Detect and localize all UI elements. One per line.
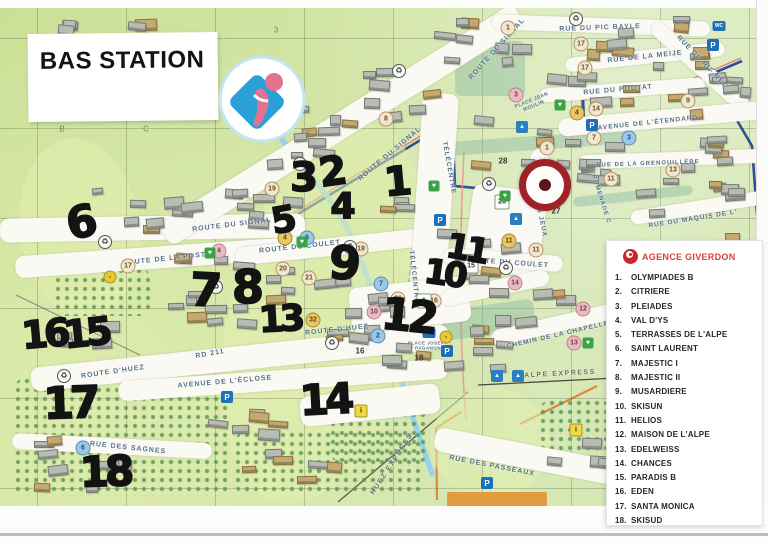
activity-icon: ▲	[491, 370, 503, 382]
building	[92, 187, 104, 195]
building	[582, 437, 602, 449]
grid-label: C	[143, 125, 149, 134]
parking-icon: P	[707, 39, 719, 51]
legend-item-label: MUSARDIERE	[631, 385, 687, 399]
legend-item: 13.EDELWEISS	[615, 443, 756, 457]
map-marker: 1	[540, 141, 555, 156]
building	[469, 326, 484, 338]
legend-item-number: 10.	[615, 400, 631, 414]
legend-item-number: 6.	[615, 342, 631, 356]
legend-item-label: CHANCES	[631, 457, 672, 471]
legend-item: 9.MUSARDIERE	[615, 385, 756, 399]
recycle-icon: ♻	[569, 12, 583, 26]
legend-item-number: 11.	[615, 414, 631, 428]
map-marker: 3	[622, 131, 637, 146]
handwritten-number: 3	[290, 158, 318, 198]
scanned-resort-map: BCDE3RUE DU PIC BAYLERUE DE LA MEIJERUE …	[0, 0, 768, 543]
handwritten-number: 1	[382, 161, 413, 203]
legend-item: 5.TERRASSES DE L'ALPE	[615, 328, 756, 342]
building	[266, 158, 283, 170]
map-marker: 17	[578, 61, 593, 76]
map-title-box: BAS STATION	[28, 32, 219, 122]
building	[471, 160, 492, 170]
activity-icon: ▲	[516, 121, 528, 133]
legend-item-label: EDELWEISS	[631, 443, 679, 457]
building	[620, 98, 634, 108]
map-marker: 14	[508, 276, 523, 291]
legend-item-number: 16.	[615, 485, 631, 499]
building	[456, 18, 469, 27]
legend-item: 15.PARADIS B	[615, 471, 756, 485]
legend-item-label: PARADIS B	[631, 471, 676, 485]
legend-item: 4.VAL D'YS	[615, 314, 756, 328]
handwritten-number: 9	[327, 239, 363, 288]
building	[382, 355, 402, 366]
map-marker: 20	[276, 262, 291, 277]
legend-item-label: TERRASSES DE L'ALPE	[631, 328, 727, 342]
building	[46, 435, 62, 447]
building	[273, 456, 293, 465]
activity-icon: ▲	[512, 370, 524, 382]
map-marker: 11	[604, 172, 619, 187]
building	[345, 308, 362, 319]
legend-item-number: 14.	[615, 457, 631, 471]
building	[364, 98, 380, 110]
building	[242, 466, 257, 474]
park-heart-icon: ♥	[555, 100, 566, 111]
legend-item-label: VAL D'YS	[631, 314, 668, 328]
building	[707, 135, 728, 144]
legend-item-number: 5.	[615, 328, 631, 342]
building	[329, 115, 341, 126]
legend-item-number: 18.	[615, 514, 631, 528]
map-marker: 11	[502, 234, 517, 249]
building	[237, 318, 258, 330]
building	[547, 457, 563, 467]
parking-icon: P	[441, 345, 453, 357]
building	[408, 105, 426, 115]
building	[379, 205, 395, 213]
info-point-icon: i	[355, 405, 368, 418]
building	[653, 62, 664, 71]
grid-label: B	[59, 125, 64, 134]
bus-stop-icon: ▪	[440, 331, 453, 344]
legend-header: AGENCE GIVERDON	[623, 249, 756, 264]
building	[34, 483, 50, 492]
legend-item: 10.SKISUN	[615, 400, 756, 414]
legend-item-number: 7.	[615, 357, 631, 371]
legend-item-number: 3.	[615, 300, 631, 314]
building	[547, 73, 568, 86]
map-marker: 28	[497, 155, 510, 168]
building	[495, 315, 511, 327]
map-marker: 32	[306, 313, 321, 328]
legend-item-number: 8.	[615, 371, 631, 385]
parking-icon: P	[221, 391, 233, 403]
building	[206, 317, 223, 327]
building	[434, 31, 456, 41]
map-marker: 3	[509, 88, 524, 103]
building	[648, 209, 665, 219]
recycle-icon: ♻	[392, 64, 406, 78]
park-heart-icon: ♥	[583, 338, 594, 349]
handwritten-number: 11	[444, 229, 489, 269]
legend-item-number: 17.	[615, 500, 631, 514]
legend-item-label: HELIOS	[631, 414, 662, 428]
legend-item-label: MAJESTIC II	[631, 371, 680, 385]
legend-item: 7.MAJESTIC I	[615, 357, 756, 371]
agency-name: AGENCE GIVERDON	[642, 252, 736, 262]
handwritten-number: 4	[330, 189, 355, 225]
legend-item: 6.SAINT LAURENT	[615, 342, 756, 356]
building	[514, 316, 537, 329]
map-marker: 9	[681, 94, 696, 109]
legend-item: 17.SANTA MONICA	[615, 500, 756, 514]
legend-item-label: MAJESTIC I	[631, 357, 678, 371]
building	[268, 420, 288, 428]
handwritten-number: 17	[43, 381, 98, 427]
building	[532, 288, 553, 300]
legend-item-number: 15.	[615, 471, 631, 485]
building	[327, 462, 343, 474]
legend-item-label: SANTA MONICA	[631, 500, 695, 514]
legend-item: 11.HELIOS	[615, 414, 756, 428]
building	[673, 16, 690, 23]
building	[124, 217, 139, 228]
agency-logo-icon	[623, 249, 638, 264]
handwritten-number: 15	[62, 312, 111, 354]
building	[740, 87, 752, 99]
handwritten-number: 18	[79, 450, 131, 494]
red-target-marker-icon	[519, 159, 571, 211]
building	[297, 476, 317, 484]
park-heart-icon: ♥	[429, 181, 440, 192]
legend-item: 14.CHANCES	[615, 457, 756, 471]
recycle-icon: ♻	[499, 261, 513, 275]
building	[501, 57, 513, 69]
map-marker: 7	[587, 131, 602, 146]
map-marker: 13	[567, 336, 582, 351]
parking-icon: P	[481, 477, 493, 489]
building	[716, 157, 733, 167]
building	[474, 338, 494, 345]
building	[512, 44, 532, 55]
building	[248, 411, 269, 424]
legend-item-label: MAISON DE L'ALPE	[631, 428, 710, 442]
recycle-icon: ♻	[482, 177, 496, 191]
building	[208, 418, 229, 428]
activity-icon: ▲	[510, 213, 522, 225]
recycle-icon: ♻	[325, 336, 339, 350]
building	[128, 21, 147, 32]
building	[231, 425, 248, 435]
building	[489, 288, 509, 298]
building	[37, 449, 58, 460]
building	[145, 217, 164, 230]
page-title: BAS STATION	[40, 46, 218, 76]
building	[474, 115, 495, 127]
building	[348, 332, 369, 345]
legend-item-label: OLYMPIADES B	[631, 271, 694, 285]
map-marker: 17	[574, 37, 589, 52]
map-marker: 12	[576, 302, 591, 317]
map-marker: 21	[302, 271, 317, 286]
legend-item-label: SAINT LAURENT	[631, 342, 698, 356]
map-marker: 17	[121, 259, 136, 274]
legend-item-label: EDEN	[631, 485, 654, 499]
legend-item-number: 9.	[615, 385, 631, 399]
map-marker: 10	[367, 305, 382, 320]
building	[231, 189, 247, 198]
legend-list: 1.OLYMPIADES B2.CITRIERE3.PLEIADES4.VAL …	[615, 271, 756, 528]
grid-label: 3	[274, 26, 278, 35]
building	[636, 189, 656, 199]
scan-edge-line	[0, 533, 768, 536]
building	[469, 275, 489, 284]
building	[281, 287, 295, 296]
building	[168, 303, 185, 310]
legend-item-number: 13.	[615, 443, 631, 457]
legend-item-number: 1.	[615, 271, 631, 285]
map-marker: 19	[265, 182, 280, 197]
map-marker: 18	[413, 352, 426, 365]
legend-item: 16.EDEN	[615, 485, 756, 499]
parking-icon: P	[586, 119, 598, 131]
park-heart-icon: ♥	[500, 191, 511, 202]
grid-label: E	[306, 130, 311, 139]
building	[674, 21, 690, 33]
bus-stop-icon: ▪	[104, 271, 117, 284]
map-marker: 4	[570, 106, 585, 121]
scan-edge-top	[0, 0, 768, 8]
building	[444, 57, 460, 65]
legend-item-number: 4.	[615, 314, 631, 328]
building	[565, 139, 582, 148]
building	[363, 71, 377, 80]
building	[237, 203, 255, 212]
handwritten-number: 14	[299, 378, 352, 423]
handwritten-number: 12	[379, 292, 437, 341]
building	[709, 181, 722, 189]
legend-item-label: PLEIADES	[631, 300, 673, 314]
map-marker: 16	[354, 345, 367, 358]
map-marker: 11	[529, 243, 544, 258]
alpe-dhuez-logo-icon	[218, 55, 306, 143]
building	[443, 360, 464, 371]
park-heart-icon: ♥	[205, 248, 216, 259]
building	[368, 79, 390, 92]
legend-item: 8.MAJESTIC II	[615, 371, 756, 385]
legend-item-label: SKISUD	[631, 514, 662, 528]
legend-item: 2.CITRIERE	[615, 285, 756, 299]
building	[607, 38, 628, 51]
handwritten-number: 13	[258, 301, 302, 339]
map-marker: 13	[666, 163, 681, 178]
wc-icon: WC	[713, 21, 726, 31]
handwritten-number: 16	[20, 313, 68, 355]
legend-panel: AGENCE GIVERDON 1.OLYMPIADES B2.CITRIERE…	[606, 240, 763, 526]
street-label: ALPE EXPRESS	[524, 369, 596, 380]
building	[130, 199, 146, 207]
legend-item-number: 2.	[615, 285, 631, 299]
building	[318, 127, 340, 137]
handwritten-number: 7	[189, 266, 223, 314]
map-marker: 14	[589, 102, 604, 117]
legend-item: 12.MAISON DE L'ALPE	[615, 428, 756, 442]
building	[728, 188, 745, 198]
building	[473, 347, 493, 356]
building	[605, 142, 625, 152]
building	[257, 428, 280, 441]
map-marker: 8	[379, 112, 394, 127]
legend-item: 3.PLEIADES	[615, 300, 756, 314]
legend-item: 18.SKISUD	[615, 514, 756, 528]
building	[180, 200, 203, 213]
building	[308, 138, 326, 149]
legend-item-label: CITRIERE	[631, 285, 670, 299]
building	[308, 460, 329, 470]
building	[663, 178, 679, 186]
legend-item: 1.OLYMPIADES B	[615, 271, 756, 285]
parking-icon: P	[434, 214, 446, 226]
legend-item-label: SKISUN	[631, 400, 662, 414]
info-point-icon: i	[570, 424, 583, 437]
legend-item-number: 12.	[615, 428, 631, 442]
map-marker: 1	[501, 21, 516, 36]
orange-banner	[447, 492, 547, 507]
